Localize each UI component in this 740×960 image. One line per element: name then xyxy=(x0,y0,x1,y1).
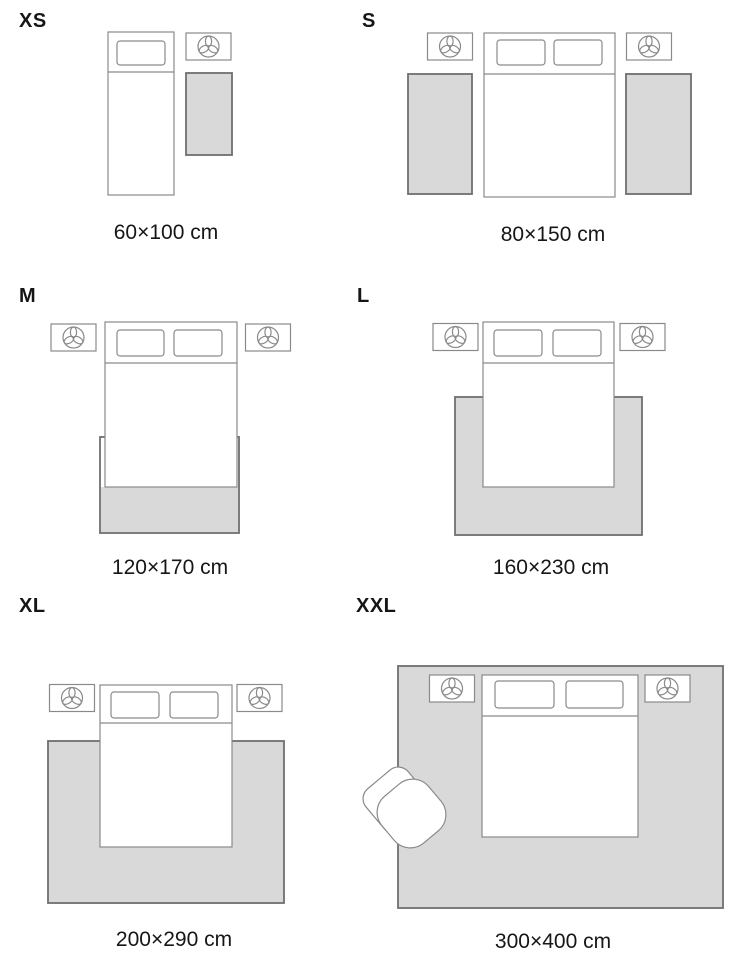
pillow xyxy=(494,330,542,356)
nightstand-lamp-icon xyxy=(433,324,478,351)
pillow xyxy=(566,681,623,708)
single-bed xyxy=(108,32,174,195)
double-bed xyxy=(482,675,638,837)
nightstand-lamp-icon xyxy=(428,33,473,60)
nightstand-lamp-icon xyxy=(51,324,96,351)
pillow xyxy=(553,330,601,356)
nightstand-lamp-icon xyxy=(430,675,475,702)
floorplan-xl xyxy=(48,685,284,904)
floorplan-xxl xyxy=(358,666,723,908)
pillow xyxy=(174,330,222,356)
pillow xyxy=(497,40,545,65)
pillow xyxy=(554,40,602,65)
rug-visible-area xyxy=(101,487,238,532)
rug xyxy=(186,73,232,155)
nightstand-lamp-icon xyxy=(237,685,282,712)
floorplan-xs xyxy=(108,32,232,195)
double-bed xyxy=(483,322,614,487)
floorplan-m xyxy=(51,322,291,533)
double-bed xyxy=(484,33,615,197)
pillow xyxy=(495,681,554,708)
nightstand-lamp-icon xyxy=(645,675,690,702)
double-bed xyxy=(100,685,232,847)
floorplan-diagrams xyxy=(0,0,740,960)
rug-size-guide: XS S M L XL XXL 60×100 cm 80×150 cm 120×… xyxy=(0,0,740,960)
nightstand-lamp-icon xyxy=(620,324,665,351)
double-bed xyxy=(105,322,237,487)
nightstand-lamp-icon xyxy=(627,33,672,60)
pillow xyxy=(117,41,165,65)
nightstand-lamp-icon xyxy=(246,324,291,351)
nightstand-lamp-icon xyxy=(50,685,95,712)
rug-right xyxy=(626,74,691,194)
pillow xyxy=(170,692,218,718)
pillow xyxy=(111,692,159,718)
floorplan-s xyxy=(408,33,691,197)
floorplan-l xyxy=(433,322,665,535)
nightstand-lamp-icon xyxy=(186,33,231,60)
rug-left xyxy=(408,74,472,194)
pillow xyxy=(117,330,164,356)
